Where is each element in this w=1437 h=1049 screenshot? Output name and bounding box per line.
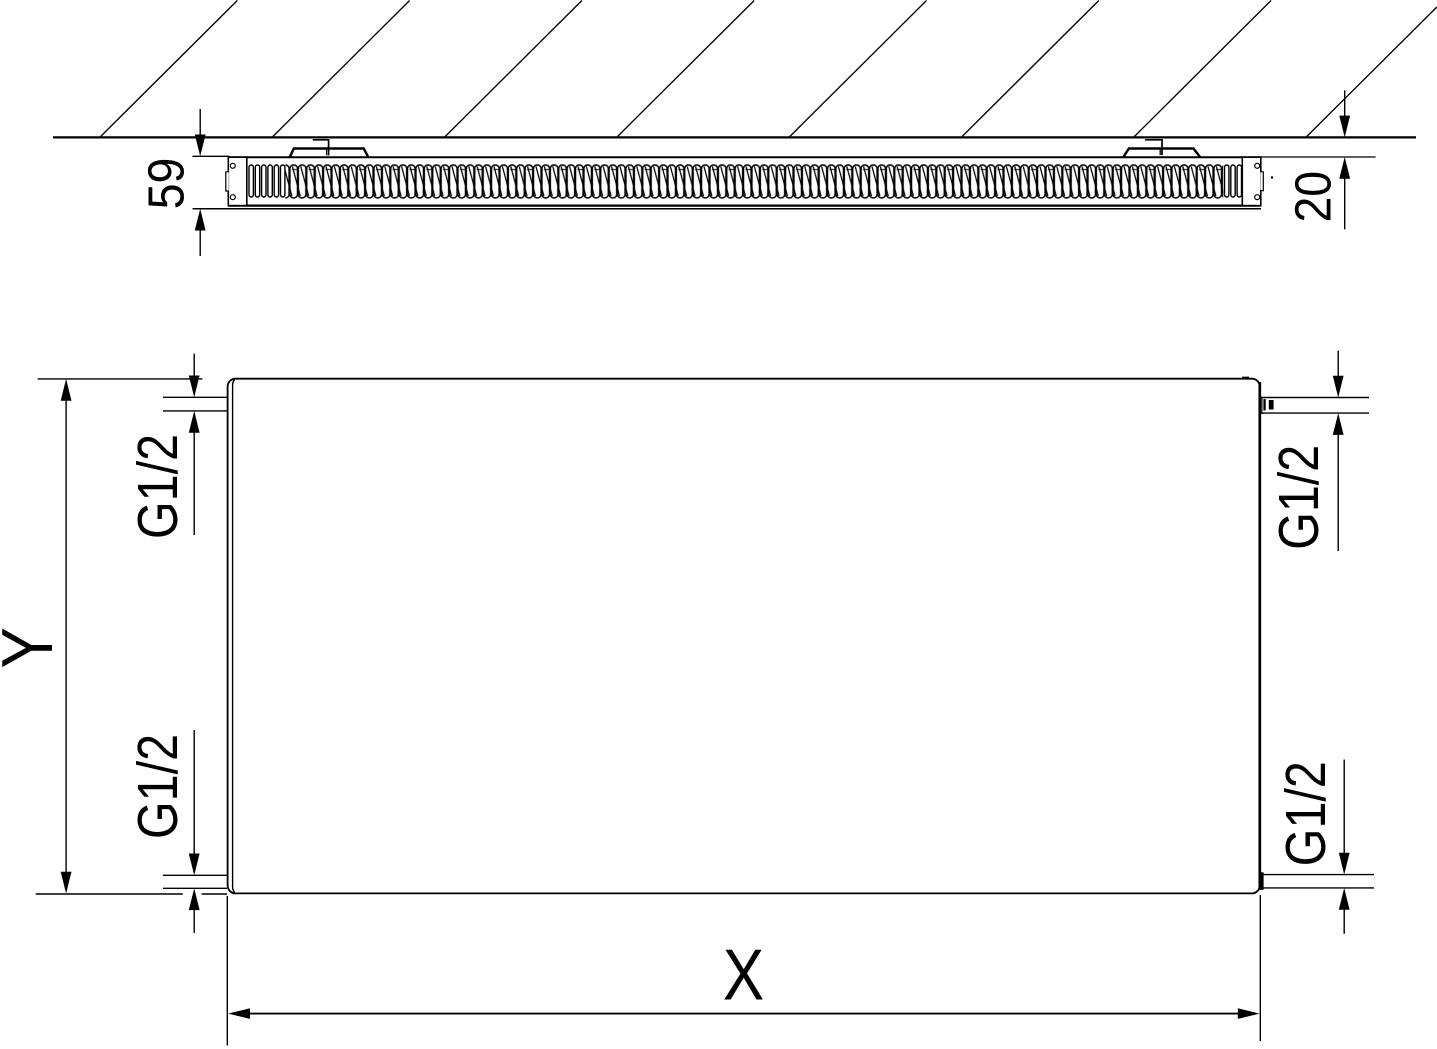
svg-text:G1/2: G1/2 — [1274, 761, 1338, 866]
svg-text:G1/2: G1/2 — [126, 734, 190, 839]
svg-text:20: 20 — [1286, 171, 1342, 223]
svg-text:G1/2: G1/2 — [126, 434, 190, 539]
svg-text:59: 59 — [139, 158, 195, 210]
svg-text:X: X — [723, 935, 764, 1015]
svg-text:G1/2: G1/2 — [1267, 445, 1331, 550]
svg-text:Y: Y — [0, 627, 68, 668]
